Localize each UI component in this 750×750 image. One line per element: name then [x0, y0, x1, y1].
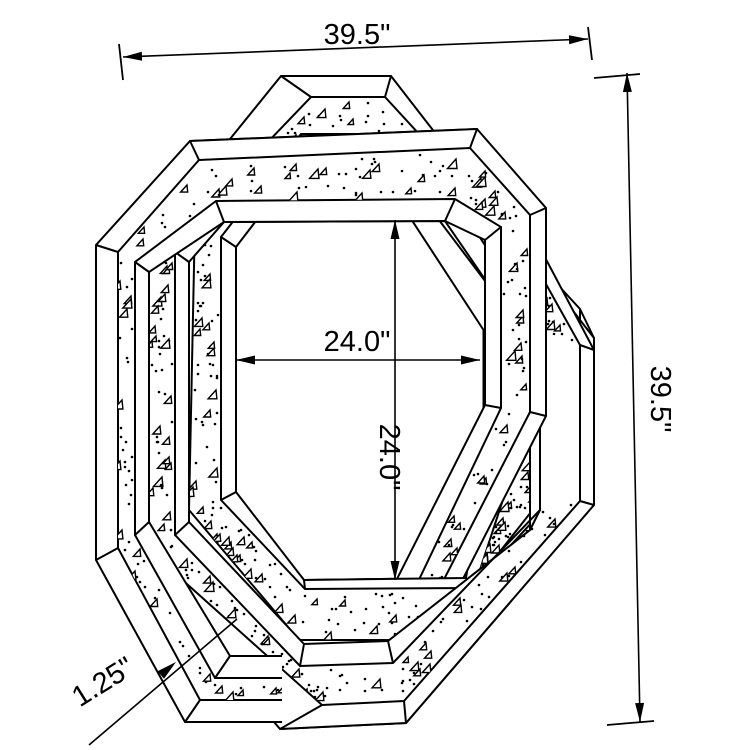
- svg-text:24.0": 24.0": [324, 326, 391, 358]
- svg-text:24.0": 24.0": [373, 424, 405, 491]
- svg-text:39.5": 39.5": [324, 19, 391, 51]
- svg-text:39.5": 39.5": [644, 366, 676, 433]
